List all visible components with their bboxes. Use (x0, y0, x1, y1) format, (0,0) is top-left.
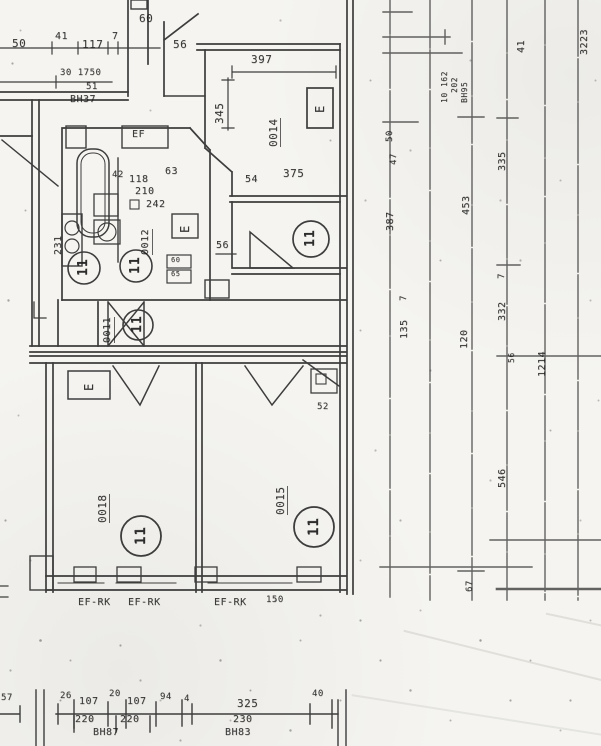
dim-67: 67 (466, 580, 475, 592)
circled-11-room-0018: 11 (134, 526, 148, 545)
dim-332: 332 (498, 301, 508, 321)
dim-242: 242 (146, 200, 166, 210)
label-ef-rk-1: EF-RK (78, 598, 111, 608)
dim-107a: 107 (79, 697, 99, 707)
dim-135: 135 (400, 319, 410, 339)
dim-7: 7 (112, 32, 119, 42)
dim-453: 453 (462, 195, 472, 215)
dim-231: 231 (54, 235, 64, 255)
dim-210: 210 (135, 187, 155, 197)
dim-60-small: 60 (171, 257, 180, 264)
floorplan-scan: 50411177605639730 175051BH37421186321024… (0, 0, 601, 746)
annotation-layer: 50411177605639730 175051BH37421186321024… (0, 0, 601, 746)
dim-220b: 220 (120, 715, 140, 725)
room-0018: 0018 (97, 495, 110, 524)
dim-60: 60 (139, 13, 153, 24)
dim-56-top: 56 (173, 39, 187, 50)
dim-54: 54 (245, 175, 258, 185)
scan-noise-speckles (0, 0, 1, 1)
room-0015: 0015 (275, 487, 288, 516)
circled-11-bath-a: 11 (77, 258, 90, 276)
dim-57-cut: 57 (1, 694, 13, 703)
dim-150: 150 (266, 596, 284, 605)
dim-107b: 107 (127, 697, 147, 707)
dim-50-right: 50 (386, 130, 395, 142)
dim-94: 94 (160, 693, 172, 702)
label-ef-rk-3: EF-RK (214, 598, 247, 608)
dim-42: 42 (112, 171, 124, 180)
note-bh37: BH37 (70, 95, 96, 105)
dim-65-small: 65 (171, 271, 180, 278)
dim-56-mid: 56 (216, 241, 229, 251)
dim-117: 117 (82, 39, 103, 50)
dim-26: 26 (60, 692, 72, 701)
dim-546: 546 (498, 468, 508, 488)
dim-7b-right: 7 (498, 273, 507, 279)
dim-4: 4 (184, 695, 190, 704)
note-51: 51 (86, 83, 98, 92)
note-bh87: BH87 (93, 728, 119, 738)
dim-387: 387 (386, 211, 396, 231)
dim-7a-right: 7 (400, 295, 409, 301)
label-ef: EF (132, 130, 145, 140)
dim-20: 20 (109, 690, 121, 699)
room-0012: 0012 (141, 229, 153, 255)
circled-11-bath-b: 11 (129, 256, 142, 274)
dim-3223: 3223 (580, 29, 590, 55)
circled-11-corridor: 11 (131, 315, 144, 333)
dim-220a: 220 (75, 715, 95, 725)
dim-1214: 1214 (538, 351, 548, 377)
dim-230: 230 (233, 715, 253, 725)
circled-11-room-mid: 11 (304, 229, 317, 247)
dim-325: 325 (237, 698, 258, 709)
dim-345: 345 (214, 103, 225, 124)
room-0014: 0014 (268, 119, 281, 148)
dim-335: 335 (498, 151, 508, 171)
circled-11-room-0015: 11 (307, 517, 321, 536)
note-30-1750: 30 1750 (60, 69, 101, 78)
note-bh95: BH95 (461, 82, 469, 103)
dim-397: 397 (251, 54, 272, 65)
note-10-162: 10 162 (441, 71, 449, 103)
dim-47-right: 47 (390, 153, 399, 165)
room-0011: 0011 (103, 317, 115, 343)
note-202: 202 (451, 77, 459, 93)
dim-41-right: 41 (517, 40, 527, 53)
label-ef-rk-2: EF-RK (128, 598, 161, 608)
label-e-0018: E (83, 383, 95, 391)
dim-40: 40 (312, 690, 324, 699)
label-e-0014: E (314, 105, 326, 113)
dim-63: 63 (165, 167, 178, 177)
dim-250-cut: 50 (12, 38, 26, 49)
dim-56-right: 56 (508, 352, 516, 363)
dim-118: 118 (129, 175, 149, 185)
dim-120: 120 (460, 329, 470, 349)
dim-41: 41 (55, 32, 68, 42)
dim-375: 375 (283, 168, 304, 179)
dim-52: 52 (317, 403, 329, 412)
label-e-bath: E (179, 225, 191, 233)
note-bh83: BH83 (225, 728, 251, 738)
